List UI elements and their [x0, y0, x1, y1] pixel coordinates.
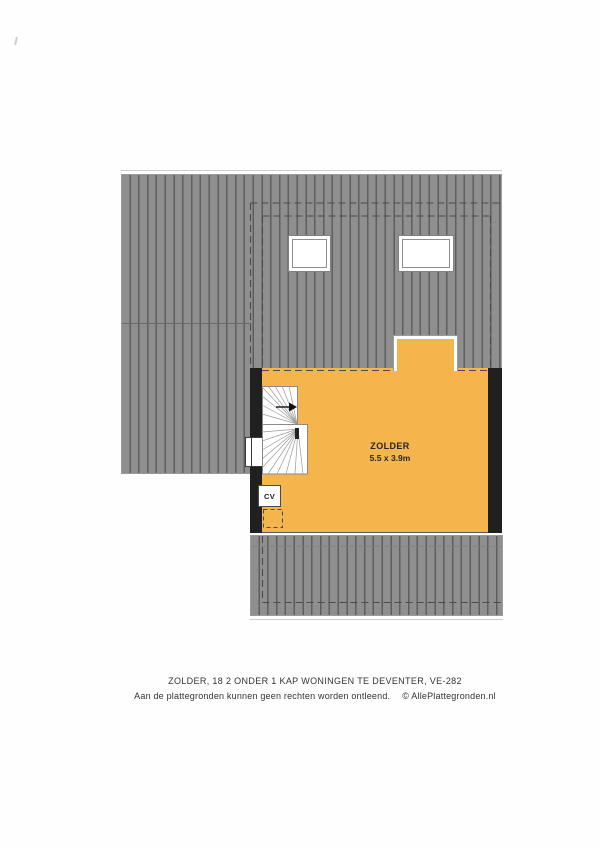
roof-section-lower [250, 535, 503, 616]
footer-title: ZOLDER, 18 2 ONDER 1 KAP WONINGEN TE DEV… [30, 675, 600, 687]
room-name: ZOLDER [320, 440, 460, 452]
skylight-window-right [398, 235, 454, 272]
room-edge-bottom [262, 532, 488, 533]
left-wall-window-pane [251, 438, 252, 466]
skylight-window-right-frame [402, 239, 450, 268]
room-label: ZOLDER 5.5 x 3.9m [320, 440, 460, 464]
footer-caption: ZOLDER, 18 2 ONDER 1 KAP WONINGEN TE DEV… [30, 675, 600, 702]
left-wall-window [245, 437, 263, 467]
dormer-fill [397, 339, 454, 372]
cv-label: CV [264, 492, 275, 501]
skylight-window-left [288, 235, 331, 272]
dormer [393, 335, 458, 371]
floorplan-page: ZOLDER 5.5 x 3.9m [0, 0, 600, 848]
roof-ridge-edge-bottom [250, 616, 503, 620]
attic-room: ZOLDER 5.5 x 3.9m [250, 368, 502, 533]
roof-seam-line [122, 323, 251, 324]
footer-copyright: © AllePlattegronden.nl [402, 691, 496, 701]
footer-disclaimer: Aan de plattegronden kunnen geen rechten… [134, 691, 390, 701]
skylight-window-left-frame [292, 239, 327, 268]
room-wall-right [488, 368, 502, 533]
room-dimensions: 5.5 x 3.9m [320, 452, 460, 464]
roof-seam-line-lower [251, 546, 502, 547]
cv-closet: CV [258, 485, 281, 507]
scan-artifact-mark [14, 37, 18, 45]
